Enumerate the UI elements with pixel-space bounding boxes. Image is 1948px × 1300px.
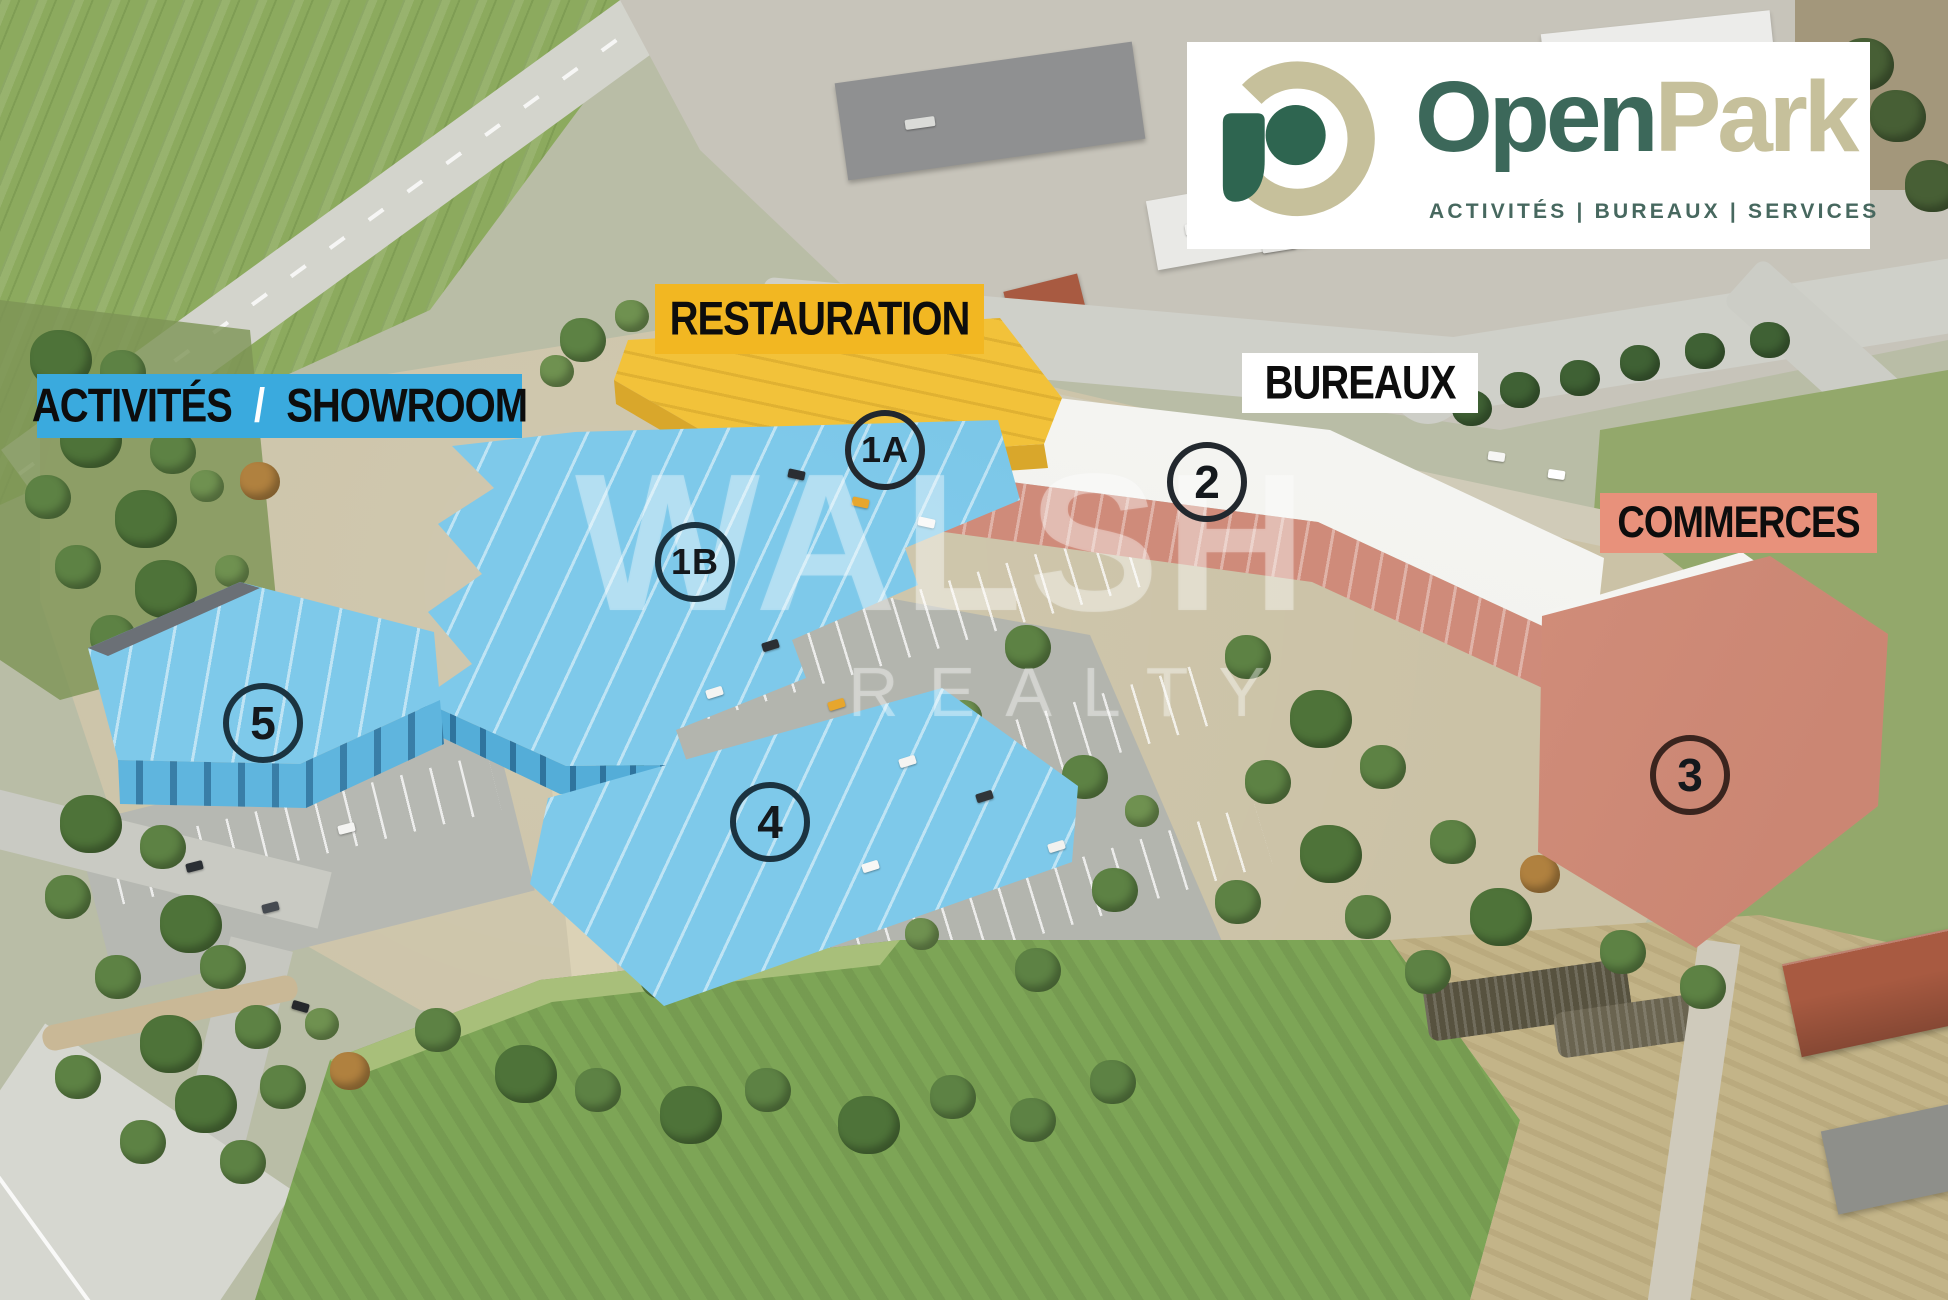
tree-autumn (330, 1052, 370, 1090)
tree (220, 1140, 266, 1184)
tree (190, 470, 224, 502)
unit-marker-5[interactable]: 5 (223, 683, 303, 763)
tree (1300, 825, 1362, 883)
tree (660, 1086, 722, 1144)
tree (60, 795, 122, 853)
logo-tagline: ACTIVITÉS | BUREAUX | SERVICES (1429, 200, 1879, 224)
zone-label-bureaux[interactable]: BUREAUX (1242, 353, 1478, 413)
hedge (1560, 360, 1600, 396)
zone-label-activites-showroom[interactable]: ACTIVITÉS / SHOWROOM (37, 374, 522, 438)
tree (215, 555, 249, 587)
tree (1600, 930, 1646, 974)
tree (1405, 950, 1451, 994)
tree (1905, 160, 1948, 212)
tree (1092, 868, 1138, 912)
hedge (1500, 372, 1540, 408)
tree (1680, 965, 1726, 1009)
car (291, 1000, 310, 1013)
tree (1430, 820, 1476, 864)
unit-marker-2[interactable]: 2 (1167, 442, 1247, 522)
tree (1125, 795, 1159, 827)
tree (1470, 888, 1532, 946)
tree (838, 1096, 900, 1154)
tree (140, 1015, 202, 1073)
tree (160, 895, 222, 953)
unit-marker-5-label: 5 (250, 696, 276, 750)
tree-autumn (240, 462, 280, 500)
tree (260, 1065, 306, 1109)
tree (1090, 1060, 1136, 1104)
tree (115, 490, 177, 548)
unit-marker-4-label: 4 (757, 795, 783, 849)
watermark-realty: REALTY (848, 652, 1295, 732)
tree (305, 1008, 339, 1040)
zone-label-commerces[interactable]: COMMERCES (1600, 493, 1877, 553)
tree (575, 1068, 621, 1112)
tree (1290, 690, 1352, 748)
tree (560, 318, 606, 362)
unit-marker-4[interactable]: 4 (730, 782, 810, 862)
tree (1010, 1098, 1056, 1142)
openpark-logo-icon (1201, 52, 1383, 240)
car (1487, 451, 1505, 462)
unit-marker-2-label: 2 (1194, 455, 1220, 509)
car (1547, 469, 1565, 480)
tree (1215, 880, 1261, 924)
tree (95, 955, 141, 999)
tree (140, 825, 186, 869)
tree (615, 300, 649, 332)
zone-label-activites-text: ACTIVITÉS (32, 379, 232, 431)
zone-label-restauration[interactable]: RESTAURATION (655, 284, 984, 354)
tree (540, 355, 574, 387)
hedge (1685, 333, 1725, 369)
tree (235, 1005, 281, 1049)
openpark-logo-card: OpenPark ACTIVITÉS | BUREAUX | SERVICES (1187, 42, 1870, 249)
tree (120, 1120, 166, 1164)
tree (1015, 948, 1061, 992)
tree (55, 545, 101, 589)
zone-label-slash: / (242, 379, 276, 431)
tree (745, 1068, 791, 1112)
zone-label-showroom-text: SHOWROOM (286, 379, 527, 431)
hedge (1620, 345, 1660, 381)
tree (45, 875, 91, 919)
tree (415, 1008, 461, 1052)
tree (930, 1075, 976, 1119)
tree (1870, 90, 1926, 142)
tree (1360, 745, 1406, 789)
tree (55, 1055, 101, 1099)
tree (495, 1045, 557, 1103)
wordmark-open: Open (1415, 61, 1655, 173)
unit-marker-3-label: 3 (1677, 748, 1703, 802)
tree (25, 475, 71, 519)
tree (905, 918, 939, 950)
tree (200, 945, 246, 989)
openpark-wordmark: OpenPark (1415, 50, 1855, 185)
tree (1345, 895, 1391, 939)
unit-marker-1b[interactable]: 1B (655, 522, 735, 602)
unit-marker-3[interactable]: 3 (1650, 735, 1730, 815)
site-plan-aerial: WALSH REALTY ACTIVITÉS / SHOWROOM RESTAU… (0, 0, 1948, 1300)
unit-marker-1b-label: 1B (671, 541, 719, 583)
unit-marker-1a-label: 1A (861, 429, 909, 471)
tree (175, 1075, 237, 1133)
unit-marker-1a[interactable]: 1A (845, 410, 925, 490)
wordmark-park: Park (1655, 61, 1856, 173)
tree (1245, 760, 1291, 804)
hedge (1750, 322, 1790, 358)
